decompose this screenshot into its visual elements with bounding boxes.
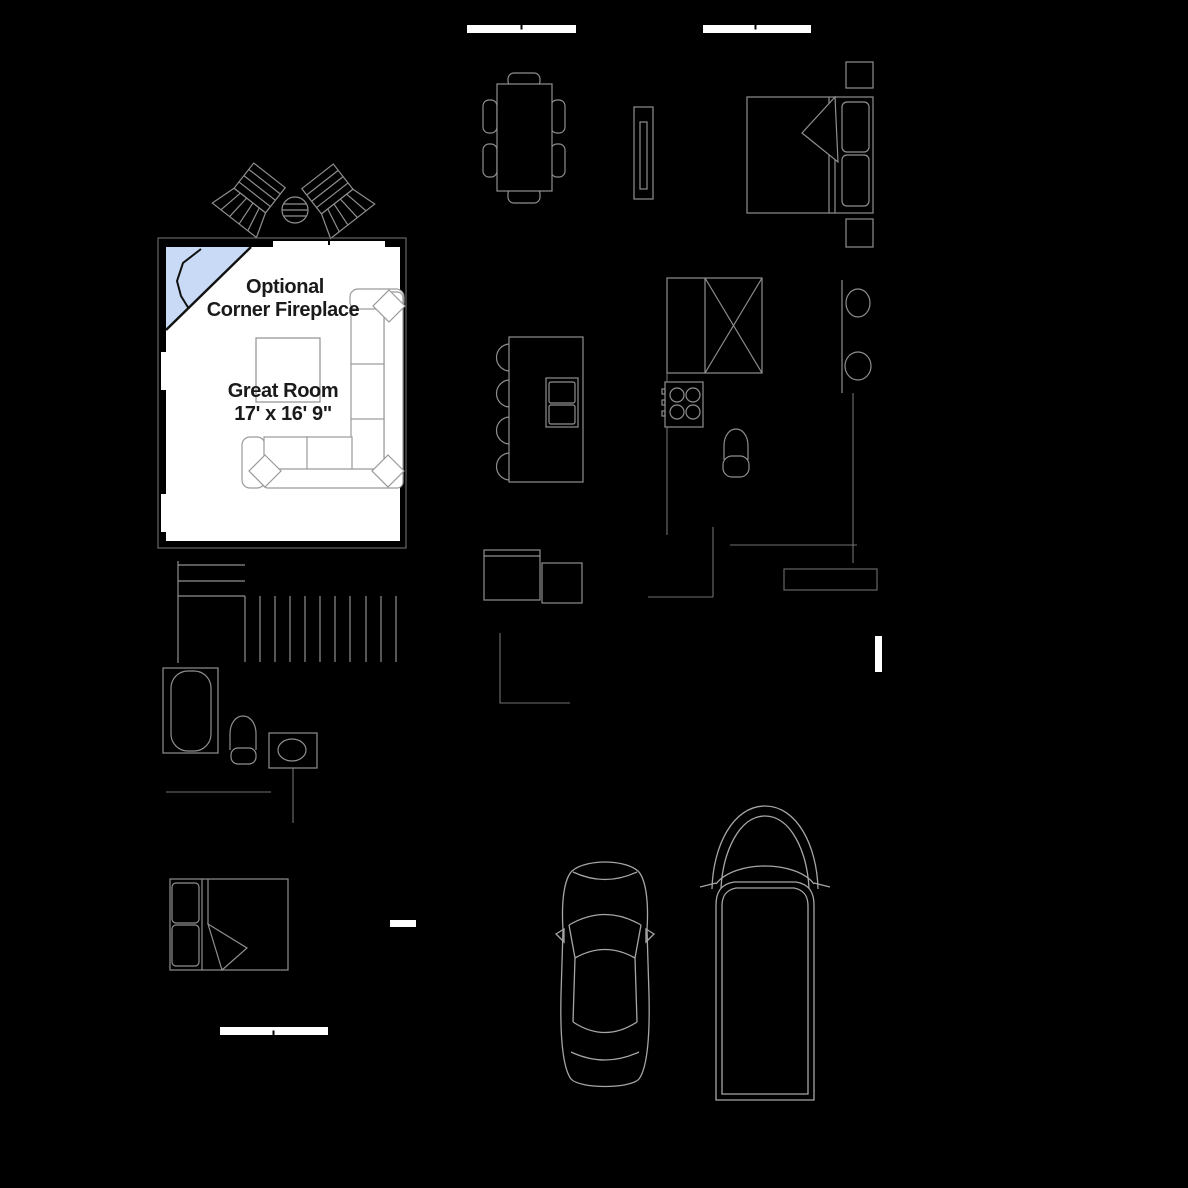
fireplace-note-line2: Corner Fireplace — [207, 299, 360, 321]
laundry — [484, 550, 582, 603]
patio-set — [212, 158, 374, 238]
pillow — [842, 102, 869, 152]
room-dimensions: 17' x 16' 9" — [234, 403, 332, 425]
pillow — [172, 883, 199, 923]
vanity-sink — [846, 289, 870, 317]
stairs — [178, 561, 396, 663]
dining-chair — [483, 144, 497, 177]
side-mirror — [700, 883, 716, 887]
kitchen-island — [497, 337, 584, 482]
bar-stool — [497, 453, 511, 480]
bathroom-vanity — [269, 733, 317, 768]
patio-chair-right — [295, 159, 374, 238]
nightstand — [846, 219, 873, 247]
pantry-cabinet — [667, 278, 762, 373]
room-name: Great Room — [228, 380, 338, 402]
pillow — [842, 155, 869, 206]
dining-set — [483, 73, 565, 203]
car-sedan — [556, 862, 654, 1087]
pillow — [172, 925, 199, 966]
bar-stool — [497, 417, 511, 444]
floor-plan-canvas: Optional Corner Fireplace Great Room 17'… — [0, 0, 1188, 1188]
bathtub — [163, 668, 218, 753]
vanity-sink — [845, 352, 871, 380]
nightstand — [846, 62, 873, 88]
hall-bathroom — [163, 668, 317, 768]
window-small-mid — [390, 920, 416, 927]
window-bottom-left — [220, 1027, 328, 1035]
dining-chair — [551, 100, 565, 133]
blanket-fold — [802, 97, 838, 162]
truck — [700, 806, 830, 1100]
master-vanity — [842, 280, 871, 393]
master-bed — [747, 97, 873, 213]
patio-table — [282, 197, 308, 223]
great-room-left-window-2 — [161, 494, 169, 532]
dining-chair — [483, 100, 497, 133]
cooktop — [662, 382, 703, 427]
fireplace-note-line1: Optional — [246, 276, 324, 298]
bath-toilet — [230, 716, 256, 764]
blanket-fold — [208, 924, 247, 970]
patio-chair-left — [212, 158, 291, 237]
console-table — [634, 107, 653, 199]
window-right-vertical — [875, 636, 882, 672]
powder-toilet — [723, 429, 749, 477]
bar-stool — [497, 344, 511, 371]
window-top-right — [703, 25, 811, 33]
floor-plan-drawing: Optional Corner Fireplace Great Room 17'… — [0, 0, 1188, 1188]
bar-stool — [497, 380, 511, 407]
dining-table — [497, 84, 552, 191]
window-top-left — [467, 25, 576, 33]
mudroom-bench — [784, 569, 877, 590]
closet-wall — [500, 633, 570, 703]
great-room: Optional Corner Fireplace Great Room 17'… — [158, 238, 406, 548]
dryer — [542, 563, 582, 603]
secondary-bed — [170, 879, 288, 970]
dining-chair — [551, 144, 565, 177]
side-mirror — [814, 883, 830, 887]
great-room-left-window-1 — [161, 352, 169, 390]
washer — [484, 550, 540, 600]
